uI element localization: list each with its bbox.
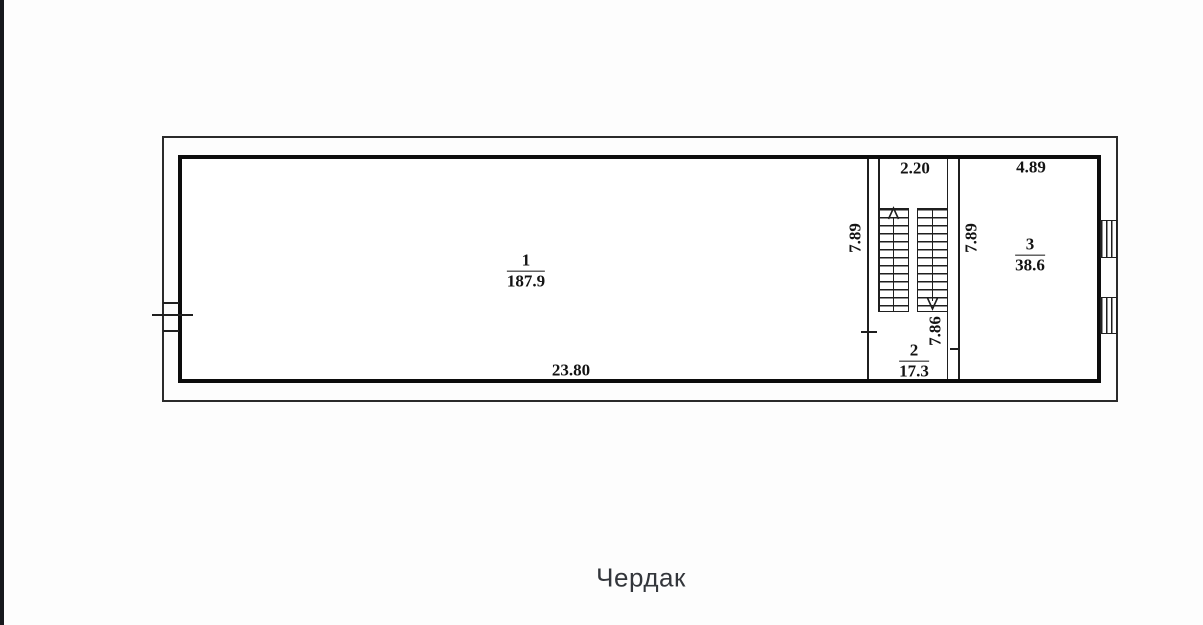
left-wall-opening-line — [152, 314, 193, 316]
room-label-3: 3 38.6 — [1015, 236, 1045, 275]
room3-wall-tick — [950, 348, 959, 350]
stair-hall-wall-tick — [861, 331, 877, 333]
dimension-room2-depth: 7.86 — [927, 316, 944, 346]
room-area: 17.3 — [899, 362, 929, 381]
dimension-left-depth: 7.89 — [847, 223, 864, 253]
room-area: 38.6 — [1015, 256, 1045, 275]
stairs-up-arrow-icon — [886, 206, 901, 221]
dimension-room3-width: 4.89 — [1016, 159, 1046, 176]
room3-partition-wall — [958, 159, 960, 379]
floor-title: Чердак — [596, 563, 686, 594]
room-area: 187.9 — [507, 272, 545, 291]
stair-hall-left-wall — [867, 159, 869, 379]
stair-down-direction-line — [932, 209, 934, 301]
stairs-down-arrow-icon — [925, 296, 940, 311]
left-wall-opening-tick-bottom — [163, 330, 179, 332]
dimension-right-depth: 7.89 — [963, 223, 980, 253]
window-symbol — [1100, 220, 1117, 258]
room-number: 2 — [899, 342, 929, 362]
left-wall-opening-tick-top — [163, 302, 179, 304]
stair-up-direction-line — [893, 217, 895, 311]
room-number: 3 — [1015, 236, 1045, 256]
room-label-2: 2 17.3 — [899, 342, 929, 381]
dimension-stair-hall-width: 2.20 — [900, 160, 930, 177]
room-label-1: 1 187.9 — [507, 252, 545, 291]
main-wall — [178, 155, 1101, 383]
room-number: 1 — [507, 252, 545, 272]
screen-edge-strip — [0, 0, 4, 625]
window-symbol — [1100, 297, 1117, 334]
floor-plan-page: 2.20 4.89 7.89 7.89 7.86 23.80 1 187.9 2… — [0, 0, 1203, 625]
dimension-total-width: 23.80 — [552, 362, 590, 379]
